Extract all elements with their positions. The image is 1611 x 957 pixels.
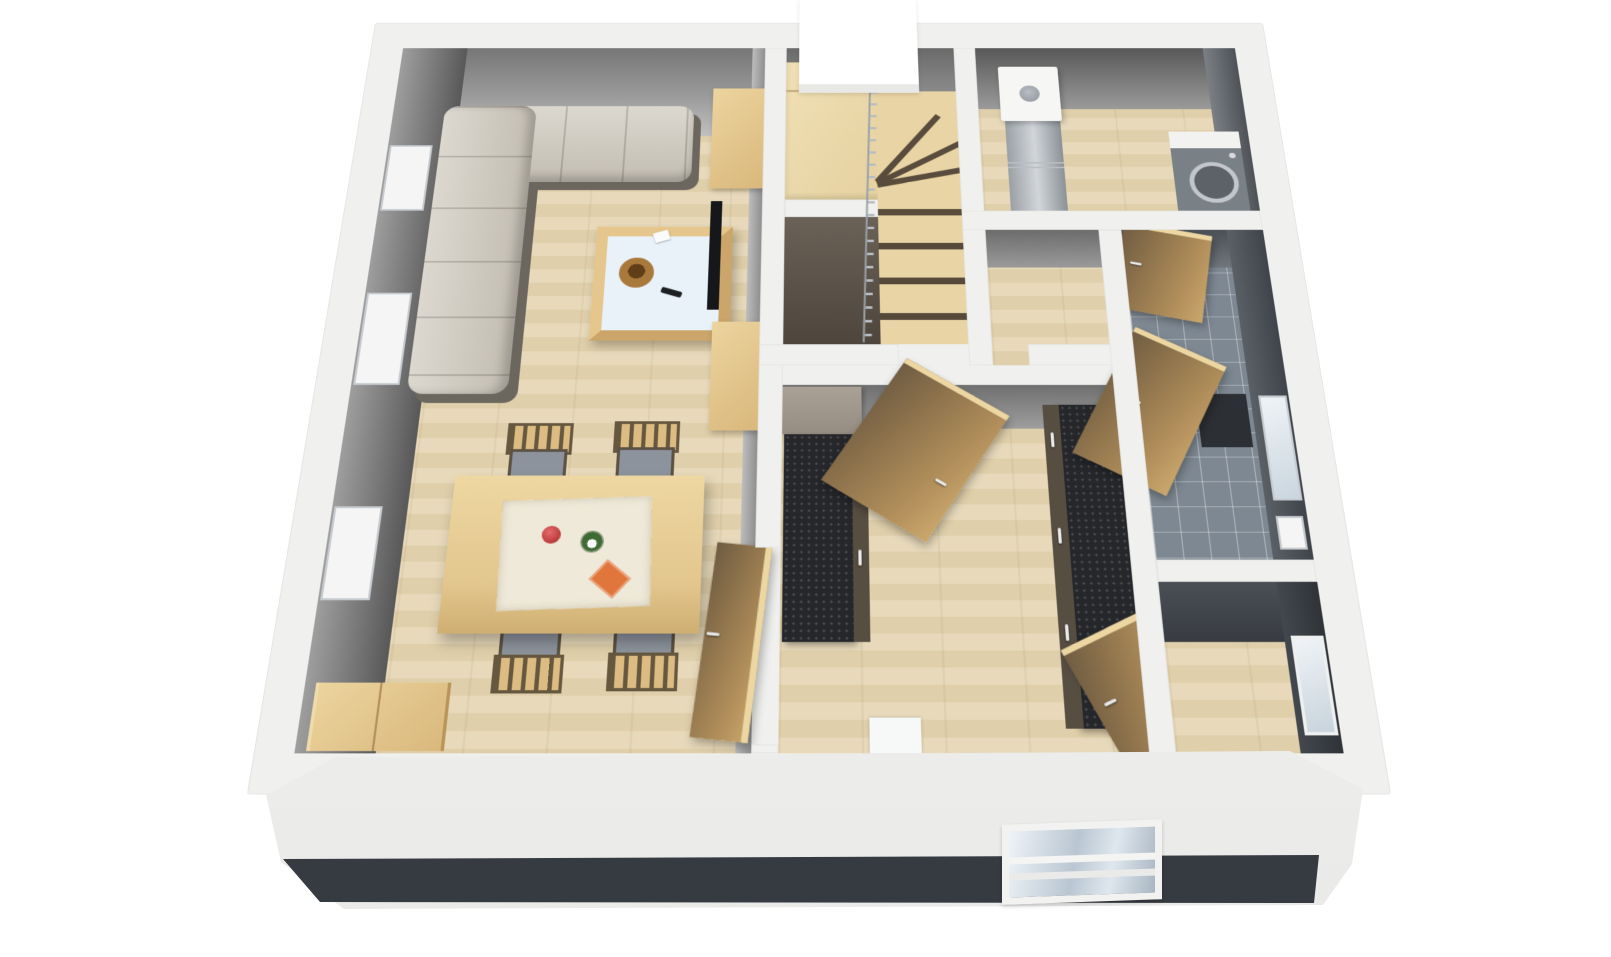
wall-bath-storage-divider: [1156, 560, 1317, 582]
cabinet-handle: [858, 550, 861, 566]
floor-plan: [247, 23, 1391, 795]
wall-kitchen-top-left: [759, 344, 899, 365]
wooden-bowl: [618, 258, 655, 288]
washer-door: [1187, 162, 1242, 203]
cabinet-handle: [1050, 432, 1054, 447]
floor-plan-scene: [0, 0, 1611, 957]
door-handle: [706, 632, 719, 636]
washing-machine: [1168, 132, 1250, 211]
water-heater-top: [998, 67, 1062, 121]
tv-cabinet-upper: [710, 88, 765, 188]
tv-remote: [660, 287, 683, 298]
washer-top: [1168, 132, 1241, 149]
kitchen-tall-cabinet: [782, 387, 862, 434]
door-handle: [1130, 261, 1142, 265]
corridor-wall-face: [985, 230, 1102, 268]
window-sash-bar: [1009, 852, 1155, 864]
cabinet-handle: [1065, 624, 1070, 641]
dining-table: [437, 476, 705, 634]
sideboard: [306, 683, 451, 751]
chair-back: [490, 655, 564, 694]
boiler-seam-2: [1008, 167, 1064, 169]
stair-riser-4: [878, 209, 962, 215]
sideboard-divider: [372, 683, 383, 751]
kitchen-sink-unit: [869, 718, 922, 754]
stair-riser-6: [879, 278, 965, 285]
tv-cabinet-lower: [708, 322, 759, 431]
stair-riser-7: [880, 313, 967, 320]
boiler-seam: [1008, 162, 1064, 164]
window-left-1: [380, 145, 433, 210]
wall-utility-bottom: [962, 211, 1263, 230]
water-heater-body: [1005, 120, 1068, 213]
dining-chair-2: [611, 421, 674, 475]
dining-chair-3: [490, 625, 560, 691]
dining-chair-1: [503, 423, 568, 477]
door-handle: [1104, 698, 1117, 707]
door-handle: [935, 478, 947, 487]
stair-riser-5: [879, 243, 964, 250]
window-sash-bar-2: [1009, 868, 1155, 880]
washer-knob: [1229, 153, 1236, 158]
chimney-bottom-edge: [799, 84, 919, 93]
stair-wall-cut: [785, 200, 892, 218]
boiler-vent-circle: [1019, 86, 1040, 102]
cabinet-handle: [1058, 528, 1062, 544]
window-front: [1002, 819, 1162, 905]
wall-living-partition-lower: [751, 744, 778, 753]
washer-front: [1170, 148, 1250, 210]
plan-perspective-wrapper: [247, 23, 1391, 795]
chimney-shaft: [799, 0, 919, 93]
chair-back: [606, 653, 679, 692]
chair-seat: [615, 447, 675, 479]
bathroom-window-sill: [1276, 516, 1308, 550]
table-runner: [496, 496, 652, 611]
white-card: [653, 230, 671, 243]
